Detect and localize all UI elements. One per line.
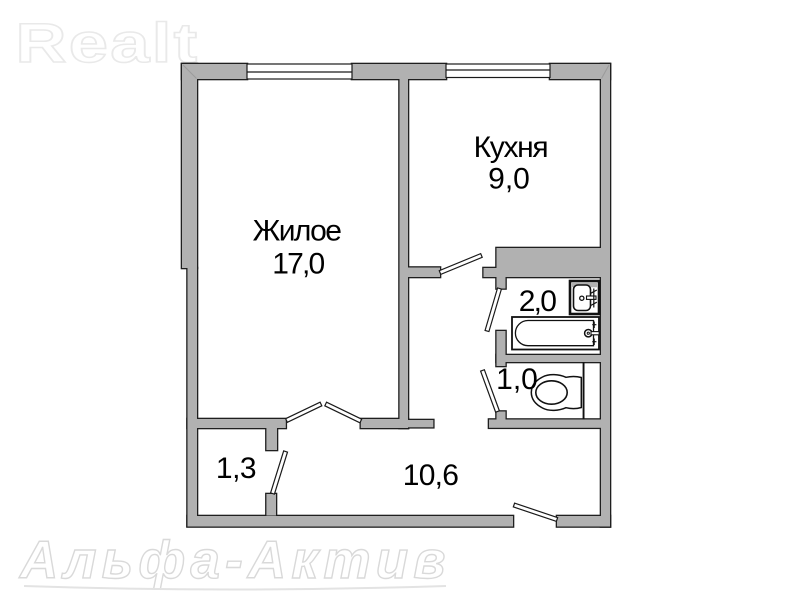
svg-text:17,0: 17,0 — [272, 248, 324, 281]
svg-text:Жилое: Жилое — [253, 215, 342, 248]
svg-text:1,3: 1,3 — [216, 452, 256, 485]
svg-text:Realt: Realt — [16, 12, 200, 74]
svg-text:Альфа-Актив: Альфа-Актив — [18, 531, 451, 590]
svg-text:Кухня: Кухня — [474, 131, 548, 164]
svg-text:9,0: 9,0 — [488, 163, 530, 196]
svg-text:2,0: 2,0 — [519, 285, 557, 318]
svg-text:10,6: 10,6 — [403, 459, 459, 492]
svg-text:1,0: 1,0 — [496, 363, 538, 396]
